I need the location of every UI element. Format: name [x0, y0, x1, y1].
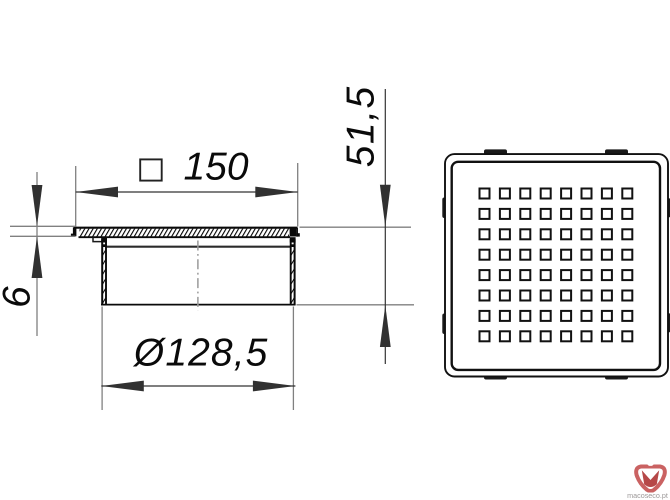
svg-text:6: 6 — [0, 286, 39, 308]
svg-text:150: 150 — [183, 146, 248, 189]
svg-text:Ø128,5: Ø128,5 — [132, 332, 269, 375]
svg-text:macoseco.pt: macoseco.pt — [627, 491, 668, 500]
svg-text:51,5: 51,5 — [340, 85, 383, 167]
